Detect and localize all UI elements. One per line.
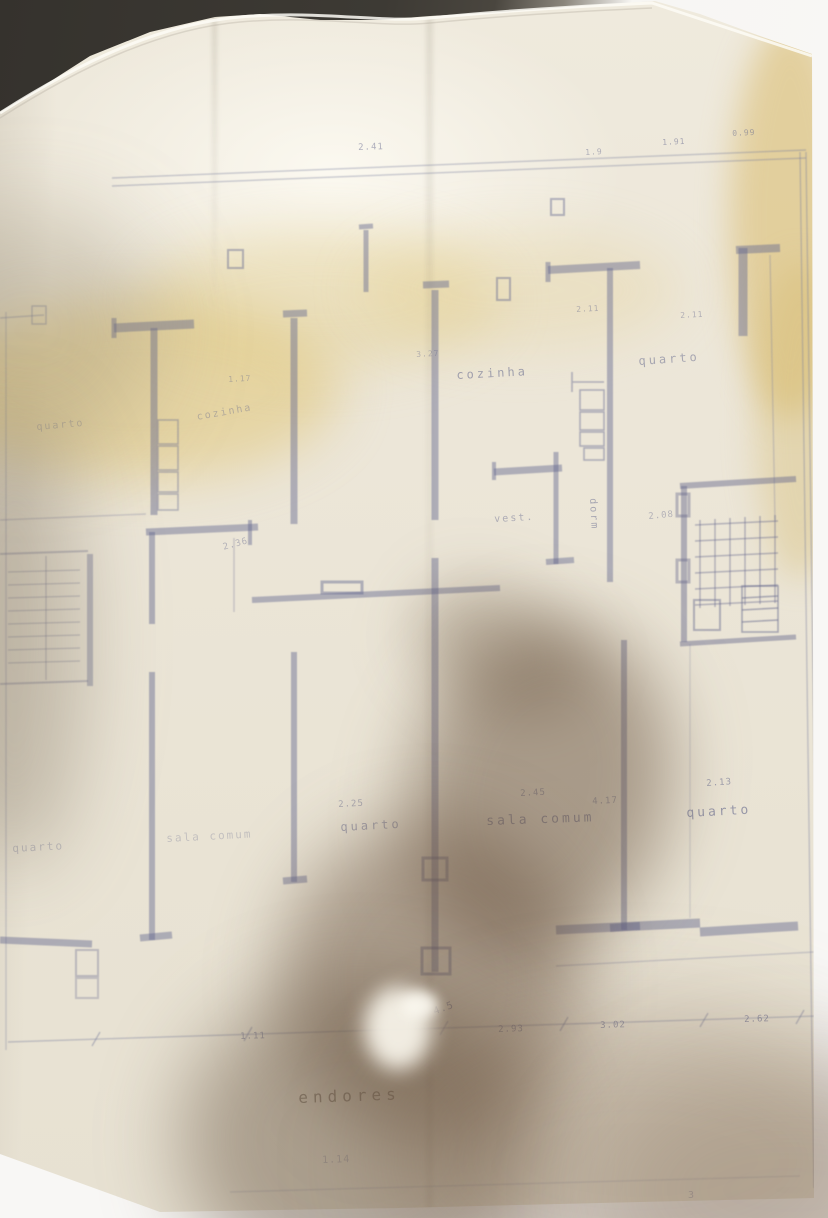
dim-3-27: 3.27 (416, 349, 440, 359)
dim-2-08: 2.08 (648, 510, 674, 522)
dim-2-13: 2.13 (706, 777, 732, 789)
dim-2-41-top: 2.41 (358, 142, 384, 153)
light-leak-spot-small (402, 991, 438, 1019)
dim-2-11-b: 2.11 (680, 310, 704, 320)
label-vest: vest. (494, 512, 535, 525)
label-quarto-topright: quarto (638, 350, 700, 368)
dim-1-17: 1.17 (228, 374, 252, 384)
dim-0-99: 0.99 (732, 128, 756, 138)
label-cozinha-right: cozinha (456, 364, 528, 382)
floor-plan-photo: cozinhaquartocozinhaquartovest.dorm2.08s… (0, 0, 828, 1218)
label-sala-comum-left: sala comum (166, 827, 253, 844)
label-dorm: dorm (587, 498, 600, 531)
label-quarto-bottomright: quarto (686, 803, 752, 821)
dim-1-9: 1.9 (585, 147, 603, 157)
label-cozinha-left: cozinha (196, 402, 253, 423)
dim-2-36: 2.36 (222, 536, 249, 552)
dim-2-25: 2.25 (338, 799, 364, 810)
dim-1-91: 1.91 (662, 137, 686, 147)
dim-2-11-a: 2.11 (576, 304, 600, 314)
